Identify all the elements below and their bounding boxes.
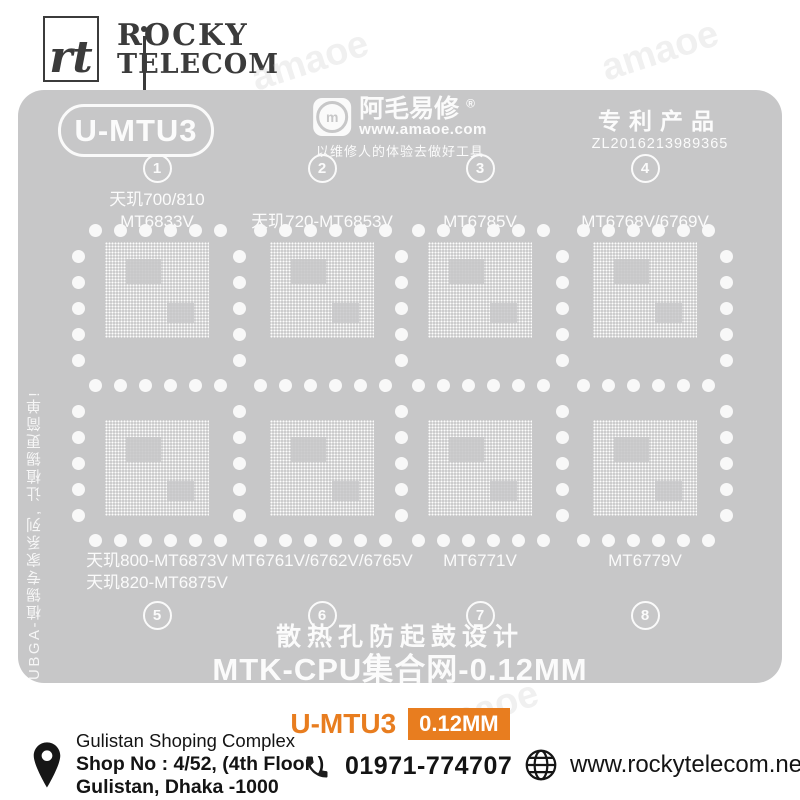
chip-cell-7: MT6771V 7 (392, 420, 568, 630)
cell-label: MT6771V (443, 550, 517, 596)
vent-hole (702, 224, 715, 237)
vent-hole (556, 328, 569, 341)
vent-hole (556, 509, 569, 522)
bga-grid-pattern (105, 242, 209, 338)
phone-icon (303, 753, 331, 781)
vent-hole (329, 224, 342, 237)
vent-hole (487, 379, 500, 392)
vent-hole (395, 483, 408, 496)
vent-hole (720, 405, 733, 418)
vent-hole (652, 379, 665, 392)
chip-cell-8: MT6779V 8 (557, 420, 733, 630)
vent-hole (395, 302, 408, 315)
vent-hole (304, 224, 317, 237)
bga-grid-pattern (270, 242, 374, 338)
vent-hole (279, 534, 292, 547)
vent-hole (89, 379, 102, 392)
vent-hole (279, 224, 292, 237)
vent-hole (379, 224, 392, 237)
vent-hole (462, 224, 475, 237)
bga-grid-pattern (105, 420, 209, 516)
brand-logo-dot (141, 26, 147, 32)
vent-hole (627, 379, 640, 392)
brand-logo-divider (143, 36, 146, 94)
website-url: www.rockytelecom.net (570, 751, 800, 779)
vent-hole (395, 457, 408, 470)
vent-hole (412, 534, 425, 547)
vent-hole (720, 328, 733, 341)
vent-hole (437, 379, 450, 392)
vent-hole (395, 431, 408, 444)
chip-cell-6: MT6761V/6762V/6765V 6 (234, 420, 410, 630)
amaoe-m-icon: m (313, 98, 351, 136)
vent-hole (233, 302, 246, 315)
phone-block: 01971-774707 (303, 752, 512, 781)
vent-hole (512, 379, 525, 392)
vent-hole (395, 405, 408, 418)
vent-hole (254, 224, 267, 237)
vent-hole (233, 250, 246, 263)
cell-label: MT6761V/6762V/6765V (231, 550, 412, 596)
brand-name-line1: ROCKY (117, 21, 279, 51)
vent-hole (233, 457, 246, 470)
vent-hole (72, 302, 85, 315)
vent-hole (702, 379, 715, 392)
vent-hole (720, 483, 733, 496)
vent-hole (233, 405, 246, 418)
vent-hole (379, 534, 392, 547)
vent-hole (254, 534, 267, 547)
patent-block: 专利产品 ZL2016213989365 (560, 108, 760, 153)
series-side-note: UBGA-植锡专家系列, 让植锡更简单! (24, 220, 45, 680)
vent-hole (412, 379, 425, 392)
patent-title: 专利产品 (560, 108, 760, 136)
stencil-plate: U-MTU3 m 阿毛易修 ® www.amaoe.com 以维修人的体验去做好… (18, 90, 782, 683)
vent-hole (556, 276, 569, 289)
vent-hole (72, 354, 85, 367)
contact-footer: Gulistan Shoping Complex Shop No : 4/52,… (0, 726, 800, 800)
vent-hole (677, 534, 690, 547)
vent-hole (487, 224, 500, 237)
chip-cell-4: 4 MT6768V/6769V (557, 154, 733, 338)
vent-hole (189, 224, 202, 237)
bga-grid-pattern (593, 242, 697, 338)
website-block: www.rockytelecom.net (522, 746, 800, 784)
vent-hole (627, 534, 640, 547)
vent-hole (72, 431, 85, 444)
vent-hole (652, 224, 665, 237)
vent-hole (72, 509, 85, 522)
vent-hole (72, 483, 85, 496)
vent-hole (395, 509, 408, 522)
vent-hole (329, 534, 342, 547)
vent-hole (214, 379, 227, 392)
brand-logo-box: rt (43, 16, 99, 82)
phone-number: 01971-774707 (345, 752, 512, 781)
vent-hole (72, 250, 85, 263)
address-block: Gulistan Shoping Complex Shop No : 4/52,… (30, 730, 324, 800)
vent-hole (89, 224, 102, 237)
vent-hole (720, 509, 733, 522)
cell-label: 天玑800-MT6873V 天玑820-MT6875V (86, 550, 228, 596)
address-line1: Gulistan Shoping Complex (76, 730, 324, 753)
vent-hole (437, 534, 450, 547)
vent-hole (214, 224, 227, 237)
vent-hole (462, 379, 475, 392)
vent-hole (512, 224, 525, 237)
stencil-spec-line: MTK-CPU集合网-0.12MM (18, 644, 782, 689)
vent-hole (602, 224, 615, 237)
vent-hole (354, 224, 367, 237)
address-line2: Shop No : 4/52, (4th Floor ) (76, 753, 324, 777)
vent-hole (720, 354, 733, 367)
vent-hole (114, 379, 127, 392)
stencil-model-badge: U-MTU3 (58, 104, 214, 157)
maker-block: m 阿毛易修 ® www.amaoe.com 以维修人的体验去做好工具 (313, 96, 487, 160)
vent-hole (677, 224, 690, 237)
bga-grid-pattern (593, 420, 697, 516)
cell-label: 天玑720-MT6853V (251, 187, 393, 233)
vent-hole (189, 379, 202, 392)
vent-hole (462, 534, 475, 547)
vent-hole (556, 431, 569, 444)
vent-hole (512, 534, 525, 547)
patent-number: ZL2016213989365 (560, 136, 760, 153)
vent-hole (72, 276, 85, 289)
vent-hole (189, 534, 202, 547)
chip-cell-2: 2 天玑720-MT6853V (234, 154, 410, 338)
vent-hole (139, 379, 152, 392)
vent-hole (602, 379, 615, 392)
vent-hole (556, 457, 569, 470)
vent-hole (556, 483, 569, 496)
vent-hole (720, 276, 733, 289)
vent-hole (537, 224, 550, 237)
vent-hole (395, 328, 408, 341)
vent-hole (233, 483, 246, 496)
vent-hole (214, 534, 227, 547)
vent-hole (720, 457, 733, 470)
vent-hole (577, 534, 590, 547)
vent-hole (652, 534, 665, 547)
vent-hole (72, 405, 85, 418)
cell-label: MT6785V (443, 187, 517, 233)
vent-hole (720, 431, 733, 444)
vent-hole (233, 431, 246, 444)
vent-hole (233, 354, 246, 367)
brand-monogram: rt (49, 38, 93, 78)
stencil-model-label: U-MTU3 (74, 113, 197, 149)
vent-hole (233, 509, 246, 522)
vent-hole (702, 534, 715, 547)
vent-hole (72, 457, 85, 470)
vent-hole (354, 379, 367, 392)
vent-hole (114, 534, 127, 547)
vent-hole (304, 534, 317, 547)
cell-number-badge: 1 (143, 154, 172, 183)
vent-hole (164, 534, 177, 547)
vent-hole (677, 379, 690, 392)
brand-name-line2: TELECOM (117, 51, 279, 78)
cell-number-badge: 4 (631, 154, 660, 183)
vent-hole (89, 534, 102, 547)
globe-icon (522, 746, 560, 784)
vent-hole (72, 328, 85, 341)
vent-hole (114, 224, 127, 237)
vent-hole (233, 276, 246, 289)
cell-number-badge: 3 (466, 154, 495, 183)
address-line3: Gulistan, Dhaka -1000 (76, 776, 324, 800)
bga-grid-pattern (428, 420, 532, 516)
chip-cell-5: 天玑800-MT6873V 天玑820-MT6875V 5 (69, 420, 245, 630)
vent-hole (537, 534, 550, 547)
vent-hole (379, 379, 392, 392)
vent-hole (537, 379, 550, 392)
chip-cell-3: 3 MT6785V (392, 154, 568, 338)
vent-hole (720, 302, 733, 315)
vent-hole (395, 276, 408, 289)
bga-grid-pattern (428, 242, 532, 338)
vent-hole (556, 302, 569, 315)
maker-name: 阿毛易修 ® (359, 96, 475, 122)
bga-grid-pattern (270, 420, 374, 516)
vent-hole (329, 379, 342, 392)
vent-hole (627, 224, 640, 237)
vent-hole (304, 379, 317, 392)
vent-hole (354, 534, 367, 547)
watermark-text: amaoe (596, 12, 724, 90)
vent-hole (577, 224, 590, 237)
vent-hole (139, 224, 152, 237)
vent-hole (556, 354, 569, 367)
chip-cell-1: 1 天玑700/810 MT6833V (69, 154, 245, 338)
vent-hole (556, 250, 569, 263)
vent-hole (164, 224, 177, 237)
maker-website: www.amaoe.com (359, 122, 487, 138)
cell-label: MT6779V (608, 550, 682, 596)
vent-hole (487, 534, 500, 547)
vent-hole (556, 405, 569, 418)
vent-hole (720, 250, 733, 263)
vent-hole (437, 224, 450, 237)
vent-hole (254, 379, 267, 392)
brand-header: rt ROCKY TELECOM (43, 16, 279, 82)
vent-hole (395, 354, 408, 367)
vent-hole (395, 250, 408, 263)
vent-hole (139, 534, 152, 547)
vent-hole (233, 328, 246, 341)
vent-hole (412, 224, 425, 237)
vent-hole (602, 534, 615, 547)
vent-hole (164, 379, 177, 392)
vent-hole (279, 379, 292, 392)
cell-number-badge: 2 (308, 154, 337, 183)
location-pin-icon (30, 741, 64, 789)
cell-label: MT6768V/6769V (581, 187, 709, 233)
vent-hole (577, 379, 590, 392)
